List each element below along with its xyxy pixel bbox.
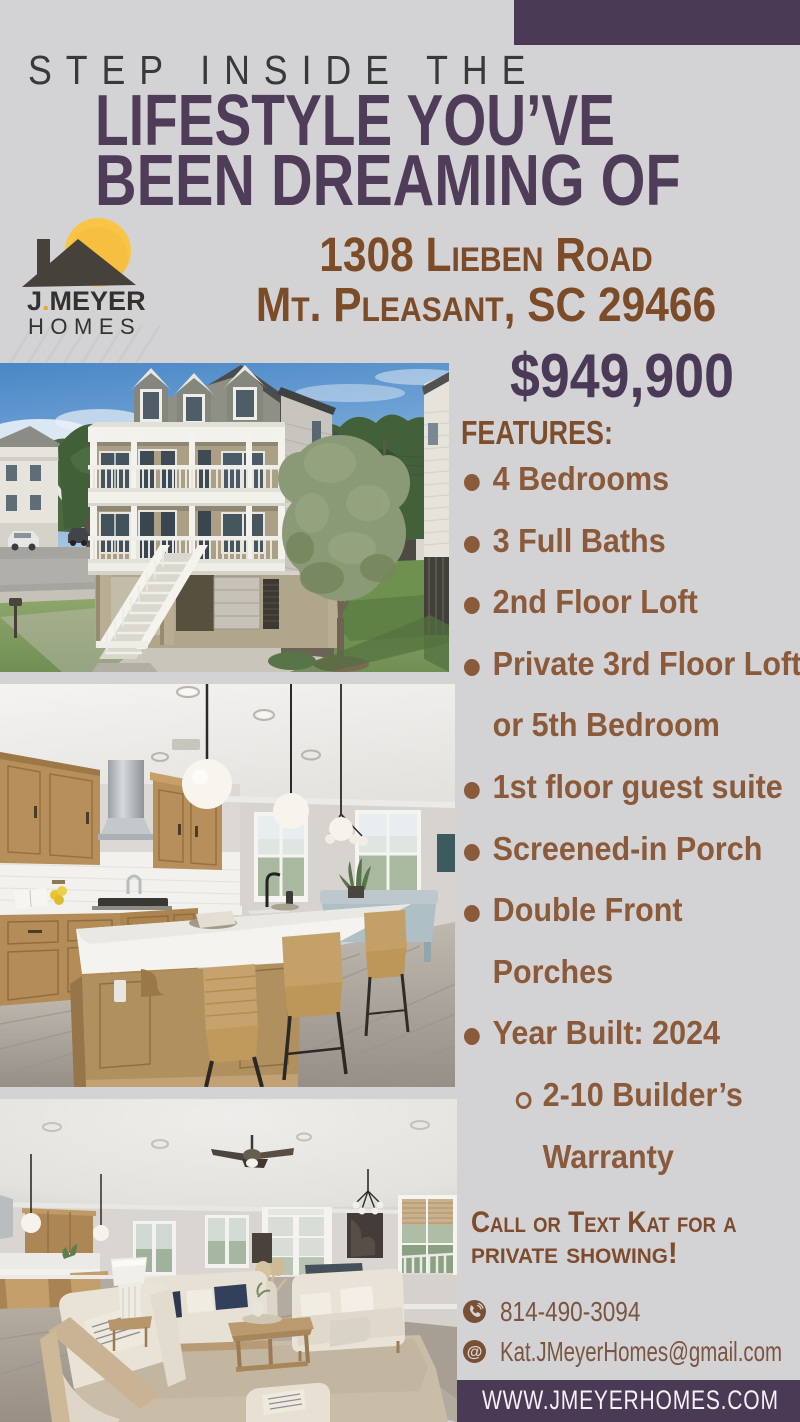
svg-text:J.MEYER: J.MEYER bbox=[27, 286, 146, 316]
svg-text:@: @ bbox=[467, 1344, 483, 1361]
svg-text:HOMES: HOMES bbox=[28, 314, 141, 339]
